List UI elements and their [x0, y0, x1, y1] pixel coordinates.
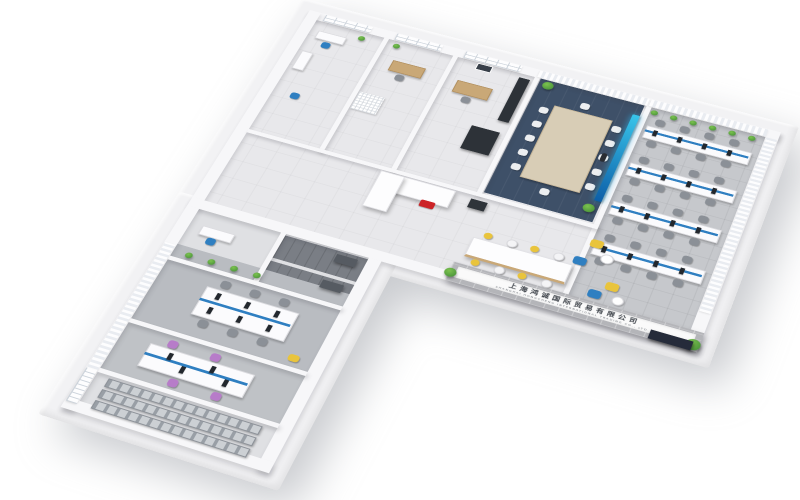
floorplan-scene: 上海鸿诚国际贸易有限公司 SHANGHAI HONGCHENG INTERNAT… [0, 0, 800, 500]
floorplan-3d: 上海鸿诚国际贸易有限公司 SHANGHAI HONGCHENG INTERNAT… [61, 10, 781, 500]
render-canvas: 上海鸿诚国际贸易有限公司 SHANGHAI HONGCHENG INTERNAT… [0, 0, 800, 500]
